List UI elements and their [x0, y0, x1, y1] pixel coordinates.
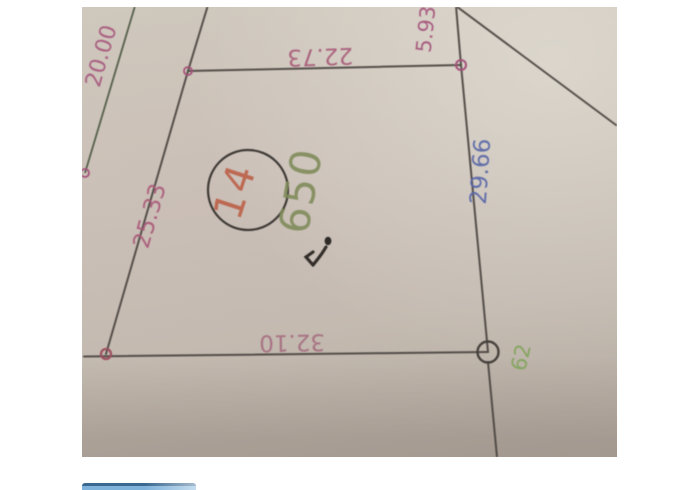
dimension-left-label: 25.33 — [129, 181, 172, 251]
survey-point-62-label: 62 — [506, 342, 535, 373]
top-right-segment-line — [456, 7, 461, 65]
dimension-top-right-segment-label: 5.93 — [412, 7, 441, 54]
cadastral-plan-photo: 22.73 32.10 25.33 20.00 5.93 29.66 62 65… — [82, 7, 617, 457]
bottom-partial-button[interactable] — [82, 483, 196, 490]
right-extension-line — [488, 362, 497, 457]
parcel-left-boundary-line — [106, 7, 208, 354]
diagonal-neighbor-line — [456, 7, 616, 125]
parcel-right-boundary-line — [461, 65, 488, 352]
parcel-area-label: 650 — [269, 144, 332, 237]
dimension-top-label: 22.73 — [287, 42, 354, 70]
dimension-right-label: 29.66 — [466, 138, 497, 206]
plan-drawing: 22.73 32.10 25.33 20.00 5.93 29.66 62 65… — [82, 7, 617, 457]
handwritten-check-mark-icon — [306, 237, 331, 265]
screenshot-root: 22.73 32.10 25.33 20.00 5.93 29.66 62 65… — [0, 0, 700, 490]
dimension-bottom-label: 32.10 — [259, 328, 325, 355]
dimension-adjacent-left-label: 20.00 — [82, 22, 122, 89]
